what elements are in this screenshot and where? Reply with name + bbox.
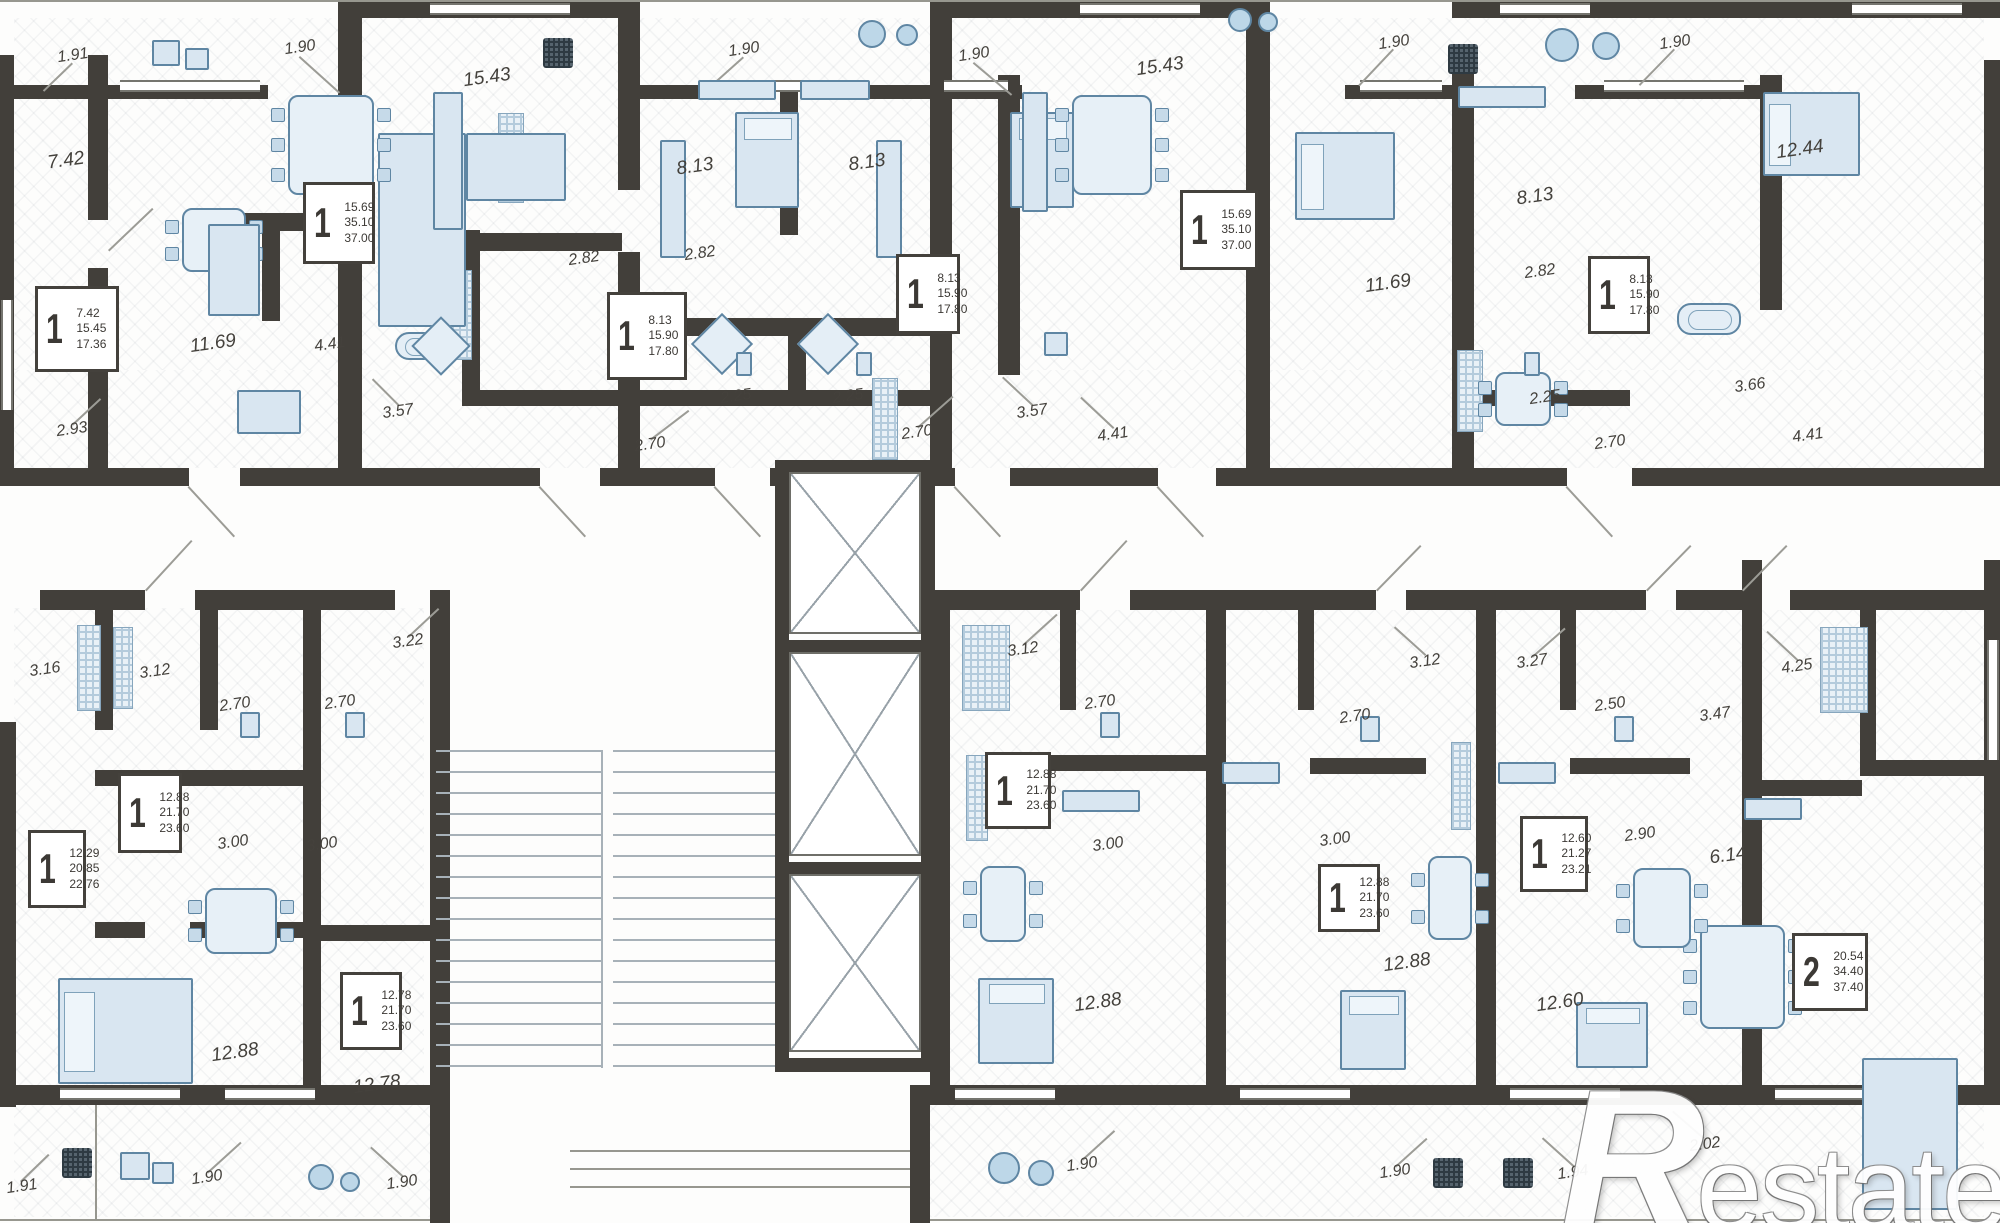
furniture-block [152, 40, 180, 66]
unit-areas: 12.2920.8522.76 [69, 846, 99, 893]
furniture-chair [1055, 138, 1069, 152]
window [225, 1088, 315, 1100]
unit-info-box: 17.4215.4517.36 [35, 286, 119, 372]
vent-shaft [1451, 742, 1471, 830]
unit-area-value: 7.42 [76, 306, 106, 322]
wall [200, 610, 218, 730]
unit-areas: 12.6021.2723.21 [1561, 831, 1591, 878]
furniture-block [1022, 92, 1048, 212]
unit-area-value: 35.10 [344, 215, 374, 231]
wall [775, 1058, 935, 1072]
wall [775, 460, 935, 472]
wall [910, 1085, 930, 1223]
wall [14, 468, 189, 486]
furniture-chair [1683, 970, 1697, 984]
unit-area-value: 12.88 [1359, 875, 1389, 891]
wall [1310, 758, 1426, 774]
balcony-rail [0, 1219, 430, 1221]
furniture-block [208, 224, 260, 316]
staircase [436, 750, 775, 1068]
stool-icon [340, 1172, 360, 1192]
wall [262, 231, 280, 321]
unit-area-value: 17.80 [1629, 303, 1659, 319]
furniture-bathtub [1677, 303, 1741, 335]
furniture-chair [271, 108, 285, 122]
door-leaf-line [539, 486, 586, 537]
balcony-rail [570, 1150, 910, 1152]
watermark-r: R [1560, 1081, 1696, 1223]
unit-areas: 12.8821.7023.60 [159, 790, 189, 837]
unit-area-value: 15.90 [1629, 287, 1659, 303]
wall [1632, 468, 1758, 486]
window [1240, 1088, 1350, 1100]
balcony-rail [0, 0, 2000, 2]
unit-area-value: 21.70 [159, 805, 189, 821]
wall [95, 922, 145, 938]
unit-rooms-count: 1 [39, 850, 56, 888]
window [120, 80, 260, 92]
unit-info-box: 115.6935.1037.00 [303, 182, 375, 264]
unit-area-value: 15.69 [1221, 207, 1251, 223]
unit-rooms-count: 1 [1191, 211, 1208, 249]
furniture-block [466, 133, 566, 201]
plant-icon [1433, 1158, 1463, 1188]
unit-rooms-count: 1 [1599, 276, 1616, 314]
wall [88, 55, 108, 220]
furniture-bed [735, 112, 799, 208]
watermark-logo: Restate [1560, 1081, 2000, 1223]
wall [40, 590, 145, 610]
furniture-fixture [1044, 332, 1068, 356]
unit-rooms-count: 2 [1803, 953, 1820, 991]
unit-area-value: 21.70 [1359, 890, 1389, 906]
unit-area-value: 23.21 [1561, 862, 1591, 878]
unit-area-value: 17.80 [937, 302, 967, 318]
furniture-chair [1694, 919, 1708, 933]
stool-icon [858, 20, 886, 48]
unit-info-box: 112.2920.8522.76 [28, 830, 86, 908]
wall [1860, 760, 1984, 776]
unit-areas: 8.1315.9017.80 [648, 313, 678, 360]
furniture-table [288, 95, 374, 195]
furniture-chair [1683, 1001, 1697, 1015]
wall [1060, 610, 1076, 710]
furniture-chair [271, 138, 285, 152]
unit-area-value: 12.78 [381, 988, 411, 1004]
wall [950, 590, 1080, 610]
furniture-chair [1694, 884, 1708, 898]
wall [1476, 590, 1496, 1105]
furniture-fixture [856, 352, 872, 376]
unit-area-value: 23.60 [381, 1019, 411, 1035]
balcony-rail [570, 1186, 910, 1188]
window [1080, 3, 1200, 15]
furniture-bed [58, 978, 193, 1084]
unit-info-box: 112.7821.7023.60 [340, 972, 402, 1050]
unit-areas: 15.6935.1037.00 [1221, 207, 1251, 254]
door-leaf-line [188, 486, 235, 537]
furniture-chair [963, 914, 977, 928]
elevator-shaft [789, 472, 921, 634]
window [955, 1088, 1055, 1100]
stool-icon [1592, 32, 1620, 60]
stool-icon [1228, 8, 1252, 32]
wall [788, 318, 806, 390]
furniture-fixture [1100, 712, 1120, 738]
furniture-block [1222, 762, 1280, 784]
vent-shaft [1820, 627, 1868, 713]
plant-icon [1448, 44, 1478, 74]
unit-area-value: 8.13 [1629, 272, 1659, 288]
unit-area-value: 20.85 [69, 861, 99, 877]
unit-area-value: 34.40 [1833, 964, 1863, 980]
stool-icon [1545, 28, 1579, 62]
unit-area-value: 20.54 [1833, 949, 1863, 965]
unit-rooms-count: 1 [46, 310, 63, 348]
furniture-chair [165, 247, 179, 261]
furniture-fixture [1614, 716, 1634, 742]
unit-rooms-count: 1 [996, 772, 1013, 810]
balcony-rail [570, 1168, 910, 1170]
unit-areas: 8.1315.9017.80 [1629, 272, 1659, 319]
door-leaf-line [1157, 486, 1204, 537]
unit-area-value: 15.45 [76, 321, 106, 337]
furniture-chair [188, 900, 202, 914]
stool-icon [896, 24, 918, 46]
furniture-chair [1478, 403, 1492, 417]
wall [195, 590, 395, 610]
window [1, 300, 13, 410]
wall [1570, 758, 1690, 774]
window [1360, 80, 1442, 92]
unit-info-box: 112.6021.2723.21 [1520, 816, 1588, 892]
furniture-chair [1055, 168, 1069, 182]
furniture-chair [1616, 884, 1630, 898]
unit-info-box: 112.8821.7023.60 [1318, 864, 1380, 932]
unit-area-value: 17.36 [76, 337, 106, 353]
unit-area-value: 12.88 [159, 790, 189, 806]
wall [775, 640, 935, 652]
unit-info-box: 112.8821.7023.60 [985, 752, 1051, 829]
unit-info-box: 112.8821.7023.60 [118, 773, 182, 853]
vent-shaft [872, 378, 898, 460]
furniture-chair [1029, 881, 1043, 895]
door-leaf-line [1376, 545, 1421, 591]
furniture-chair [188, 928, 202, 942]
wall [1010, 468, 1158, 486]
wall [1676, 590, 1742, 610]
wall [1742, 780, 1862, 796]
wall [462, 390, 618, 406]
furniture-bed [1295, 132, 1395, 220]
wall [1496, 590, 1646, 610]
furniture-chair [1478, 381, 1492, 395]
unit-info-box: 115.6935.1037.00 [1180, 190, 1258, 270]
unit-rooms-count: 1 [1329, 879, 1346, 917]
furniture-table [205, 888, 277, 954]
watermark-estate: estate [1697, 1142, 2000, 1223]
unit-area-value: 15.90 [648, 328, 678, 344]
wall [1130, 590, 1206, 610]
furniture-chair [1475, 873, 1489, 887]
furniture-table [980, 866, 1026, 942]
wall [1226, 590, 1376, 610]
wall [1452, 468, 1567, 486]
furniture-fixture [736, 352, 752, 376]
furniture-chair [963, 881, 977, 895]
unit-rooms-count: 1 [1531, 835, 1548, 873]
unit-areas: 7.4215.4517.36 [76, 306, 106, 353]
plant-icon [543, 38, 573, 68]
window [1604, 80, 1744, 92]
furniture-block [698, 80, 776, 100]
furniture-chair [1029, 914, 1043, 928]
wall [1216, 468, 1452, 486]
window [1852, 3, 1962, 15]
furniture-chair [1155, 108, 1169, 122]
door-leaf-line [1080, 540, 1127, 591]
furniture-bed [1340, 990, 1406, 1070]
unit-areas: 20.5434.4037.40 [1833, 949, 1863, 996]
window [1987, 640, 1999, 760]
wall [1758, 468, 1984, 486]
bed-pillow [64, 992, 95, 1072]
stool-icon [308, 1164, 334, 1190]
unit-area-value: 12.29 [69, 846, 99, 862]
unit-areas: 12.8821.7023.60 [1026, 767, 1056, 814]
bed-pillow [989, 984, 1046, 1004]
wall [1406, 590, 1476, 610]
unit-area-value: 23.60 [1359, 906, 1389, 922]
furniture-chair [377, 168, 391, 182]
unit-area-value: 15.90 [937, 286, 967, 302]
furniture-bed [978, 978, 1054, 1064]
vent-shaft [962, 625, 1010, 711]
furniture-fixture [345, 712, 365, 738]
vent-shaft [77, 625, 101, 711]
window [430, 3, 570, 15]
furniture-block [120, 1152, 150, 1180]
furniture-table [1633, 868, 1691, 948]
bed-pillow [1349, 996, 1398, 1015]
furniture-block [1744, 798, 1802, 820]
unit-rooms-count: 1 [129, 794, 146, 832]
furniture-block [185, 48, 209, 70]
furniture-block [1498, 762, 1556, 784]
furniture-block [152, 1162, 174, 1184]
unit-area-value: 37.40 [1833, 980, 1863, 996]
furniture-chair [1616, 919, 1630, 933]
floor-plan: 1.917.421.9015.431.901.9015.431.901.9012… [0, 0, 2000, 1223]
unit-area-value: 22.76 [69, 877, 99, 893]
furniture-block [433, 92, 463, 230]
wall [1790, 590, 1984, 610]
wall [1298, 610, 1314, 710]
door-leaf-line [954, 486, 1001, 537]
wall [1206, 590, 1226, 1105]
vent-shaft [113, 627, 133, 709]
wall [1040, 755, 1206, 771]
unit-info-box: 18.1315.9017.80 [896, 254, 960, 334]
unit-rooms-count: 1 [618, 317, 635, 355]
wall [303, 925, 430, 941]
balcony-rail [95, 1105, 97, 1219]
unit-info-box: 220.5434.4037.40 [1792, 933, 1868, 1011]
furniture-block [1062, 790, 1140, 812]
elevator-shaft [789, 874, 921, 1052]
furniture-chair [1475, 910, 1489, 924]
unit-area-value: 37.00 [344, 231, 374, 247]
furniture-chair [1155, 138, 1169, 152]
furniture-block [237, 390, 301, 434]
wall [775, 862, 935, 874]
wall [430, 1085, 450, 1223]
unit-area-value: 23.60 [1026, 798, 1056, 814]
furniture-chair [271, 168, 285, 182]
unit-area-value: 21.70 [1026, 783, 1056, 799]
furniture-chair [377, 108, 391, 122]
unit-areas: 8.1315.9017.80 [937, 271, 967, 318]
wall [0, 722, 16, 1107]
furniture-table [1700, 925, 1785, 1029]
wall [1560, 610, 1576, 710]
unit-rooms-count: 1 [314, 204, 331, 242]
furniture-chair [165, 220, 179, 234]
furniture-chair [1055, 108, 1069, 122]
unit-area-value: 12.88 [1026, 767, 1056, 783]
bathtub-basin [1688, 310, 1732, 330]
furniture-chair [280, 928, 294, 942]
furniture-chair [280, 900, 294, 914]
unit-area-value: 23.60 [159, 821, 189, 837]
furniture-fixture [1524, 352, 1540, 376]
wall [775, 460, 789, 1070]
furniture-block [800, 80, 870, 100]
unit-areas: 15.6935.1037.00 [344, 200, 374, 247]
unit-rooms-count: 1 [351, 992, 368, 1030]
door-leaf-line [714, 486, 761, 537]
window [1500, 3, 1590, 15]
wall [240, 468, 540, 486]
unit-rooms-count: 1 [907, 275, 924, 313]
door-leaf-line [1566, 486, 1613, 537]
unit-area-value: 8.13 [937, 271, 967, 287]
elevator-shaft [789, 652, 921, 856]
door-leaf-line [145, 540, 192, 591]
unit-areas: 12.7821.7023.60 [381, 988, 411, 1035]
unit-area-value: 8.13 [648, 313, 678, 329]
stair-divider [601, 750, 613, 1068]
wall [0, 55, 14, 486]
window [60, 1088, 180, 1100]
bed-pillow [744, 118, 792, 140]
unit-area-value: 12.60 [1561, 831, 1591, 847]
plant-icon [1503, 1158, 1533, 1188]
stool-icon [1028, 1160, 1054, 1186]
furniture-fixture [240, 712, 260, 738]
furniture-chair [1155, 168, 1169, 182]
plant-icon [62, 1148, 92, 1178]
door-leaf-line [1646, 545, 1691, 591]
wall [14, 85, 88, 99]
unit-area-value: 37.00 [1221, 238, 1251, 254]
wall [600, 468, 715, 486]
bed-pillow [1586, 1008, 1640, 1024]
furniture-table [1072, 95, 1152, 195]
stool-icon [1258, 12, 1278, 32]
furniture-table [1428, 856, 1472, 940]
unit-areas: 12.8821.7023.60 [1359, 875, 1389, 922]
wall [921, 460, 935, 1070]
unit-info-box: 18.1315.9017.80 [1588, 256, 1650, 334]
furniture-chair [1411, 910, 1425, 924]
wall [1984, 60, 2000, 486]
stool-icon [988, 1152, 1020, 1184]
unit-area-value: 35.10 [1221, 222, 1251, 238]
unit-area-value: 15.69 [344, 200, 374, 216]
furniture-chair [1411, 873, 1425, 887]
bed-pillow [1301, 144, 1324, 210]
unit-area-value: 21.70 [381, 1003, 411, 1019]
unit-area-value: 21.27 [1561, 846, 1591, 862]
unit-info-box: 18.1315.9017.80 [607, 292, 687, 380]
furniture-chair [377, 138, 391, 152]
furniture-block [1458, 86, 1546, 108]
unit-area-value: 17.80 [648, 344, 678, 360]
